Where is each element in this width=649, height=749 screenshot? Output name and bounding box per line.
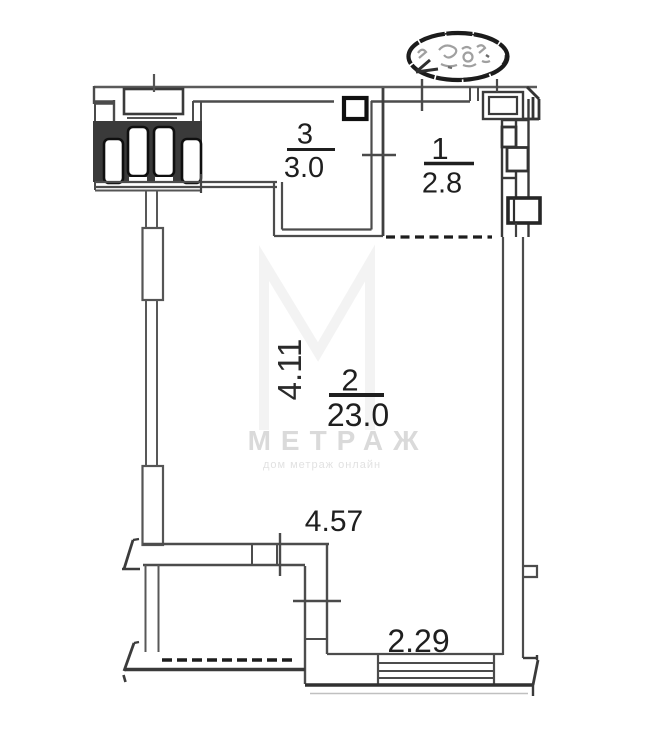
svg-text:23.0: 23.0	[327, 397, 389, 433]
svg-text:4.11: 4.11	[271, 339, 308, 401]
svg-text:2.8: 2.8	[422, 168, 462, 200]
svg-text:4.57: 4.57	[305, 505, 363, 538]
svg-text:3.0: 3.0	[284, 152, 324, 184]
svg-text:2: 2	[341, 363, 358, 398]
svg-text:дом метраж онлайн: дом метраж онлайн	[263, 459, 381, 471]
svg-text:3: 3	[297, 119, 313, 151]
svg-text:1: 1	[431, 131, 448, 166]
